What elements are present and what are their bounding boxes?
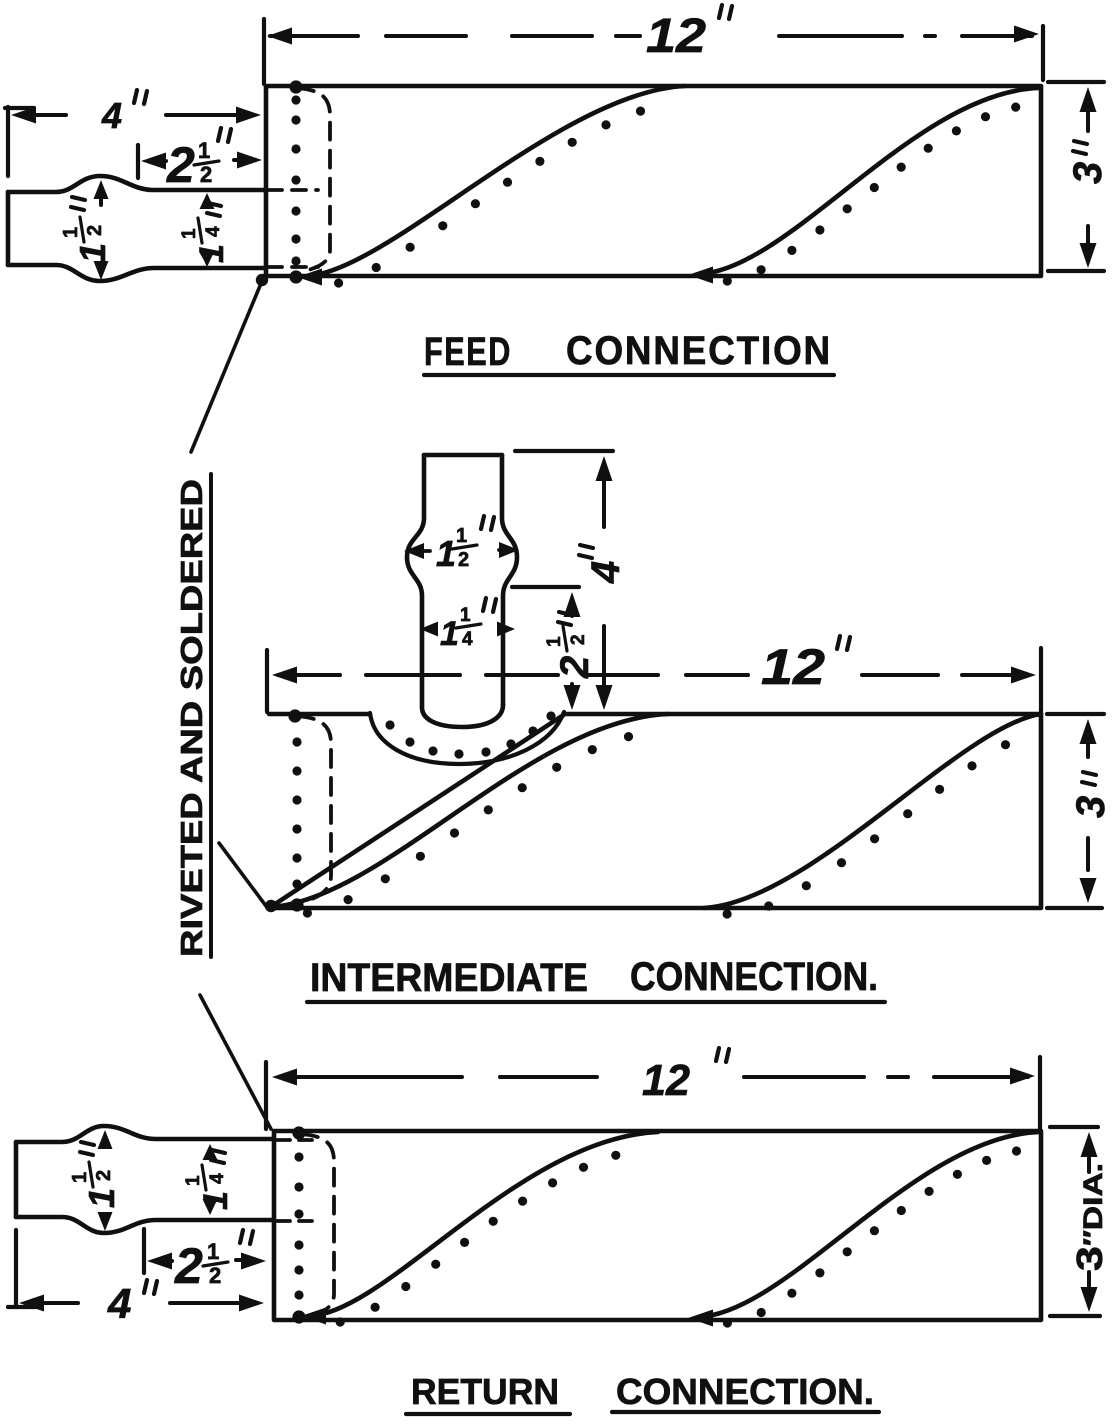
- svg-text:1: 1: [60, 227, 82, 238]
- svg-text:RIVETED AND SOLDERED: RIVETED AND SOLDERED: [174, 479, 209, 957]
- svg-text:2: 2: [166, 137, 195, 193]
- svg-text:RETURN: RETURN: [411, 1371, 559, 1412]
- svg-text:CONNECTION.: CONNECTION.: [616, 1371, 874, 1412]
- svg-text:2: 2: [84, 225, 106, 236]
- svg-text:3″DIA.: 3″DIA.: [1069, 1163, 1110, 1271]
- svg-text:4: 4: [462, 629, 473, 650]
- svg-text:2: 2: [200, 162, 212, 187]
- svg-text:2: 2: [568, 634, 589, 645]
- svg-text:1: 1: [183, 1175, 204, 1186]
- svg-text:1: 1: [179, 228, 200, 239]
- svg-text:4: 4: [584, 561, 628, 584]
- svg-text:2: 2: [553, 656, 597, 679]
- svg-text:4: 4: [101, 95, 122, 136]
- svg-text:1: 1: [544, 636, 565, 647]
- svg-text:FEED: FEED: [424, 330, 512, 374]
- svg-text:4: 4: [107, 1280, 131, 1327]
- svg-text:2: 2: [174, 1238, 203, 1294]
- svg-text:2: 2: [458, 549, 469, 571]
- svg-text:1: 1: [440, 615, 459, 653]
- svg-text:1: 1: [69, 1172, 91, 1183]
- svg-text:INTERMEDIATE: INTERMEDIATE: [310, 956, 588, 1000]
- svg-text:2: 2: [93, 1170, 115, 1181]
- svg-text:1: 1: [207, 1239, 219, 1264]
- svg-text:1: 1: [72, 243, 113, 263]
- svg-text:4: 4: [203, 226, 224, 237]
- svg-text:1: 1: [81, 1188, 122, 1208]
- svg-text:4: 4: [207, 1173, 228, 1184]
- svg-text:2: 2: [209, 1263, 221, 1288]
- svg-text:1: 1: [436, 533, 456, 574]
- svg-text:12: 12: [642, 1056, 691, 1105]
- svg-text:3: 3: [1066, 162, 1110, 184]
- svg-text:CONNECTION: CONNECTION: [566, 329, 832, 373]
- svg-text:1: 1: [198, 138, 210, 163]
- svg-text:12: 12: [761, 639, 825, 695]
- svg-text:1: 1: [460, 605, 471, 626]
- svg-text:CONNECTION.: CONNECTION.: [630, 955, 878, 999]
- svg-text:12: 12: [646, 10, 706, 63]
- svg-text:3: 3: [1069, 796, 1113, 818]
- svg-text:1: 1: [456, 525, 467, 547]
